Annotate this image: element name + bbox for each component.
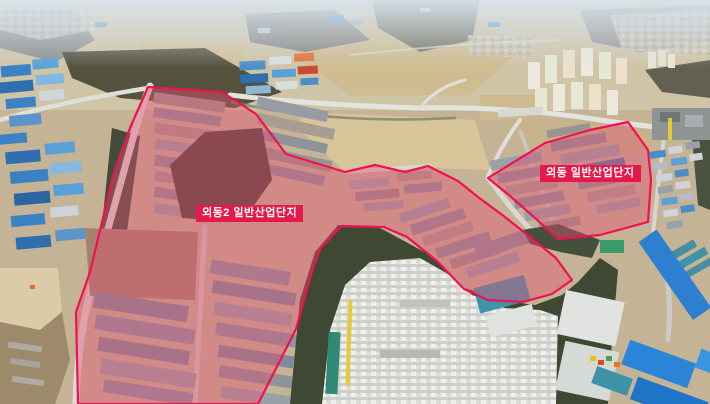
excavated-ground — [0, 268, 70, 404]
aerial-photo-annotated: 외동2 일반산업단지 외동 일반산업단지 — [0, 0, 710, 404]
region-label-oedong: 외동 일반산업단지 — [540, 165, 641, 182]
region-label-oedong2: 외동2 일반산업단지 — [196, 205, 303, 222]
aerial-photo — [0, 0, 710, 404]
haze-layer — [0, 0, 710, 68]
